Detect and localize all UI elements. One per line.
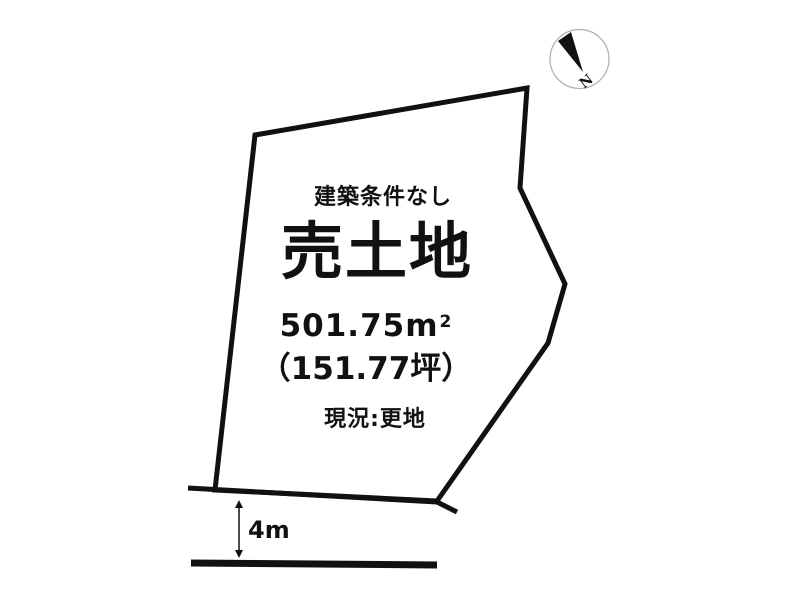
road-width-label: 4m	[248, 518, 290, 542]
building-condition-label: 建築条件なし	[314, 187, 452, 209]
sale-type-title: 売土地	[281, 221, 473, 283]
land-plot-outline	[215, 88, 565, 501]
land-sale-site-plan: N 建築条件なし 売土地 501.75m2 （151.77坪） 現況:更地 4m	[0, 0, 800, 596]
arrow-up-icon	[235, 500, 243, 508]
road-lower-edge	[191, 563, 437, 565]
current-status-label: 現況:更地	[324, 409, 426, 431]
area-square-meters: 501.75m2	[280, 311, 453, 342]
road-width-dimension	[235, 500, 243, 558]
site-plan-drawing: N	[0, 0, 800, 596]
area-tsubo: （151.77坪）	[260, 354, 473, 385]
area-sqm-unit-exponent: 2	[440, 312, 453, 332]
road-upper-edge	[188, 488, 457, 512]
area-sqm-value: 501.75	[280, 308, 406, 344]
arrow-down-icon	[235, 550, 243, 558]
compass: N	[550, 30, 609, 93]
area-sqm-unit: m	[405, 308, 438, 344]
